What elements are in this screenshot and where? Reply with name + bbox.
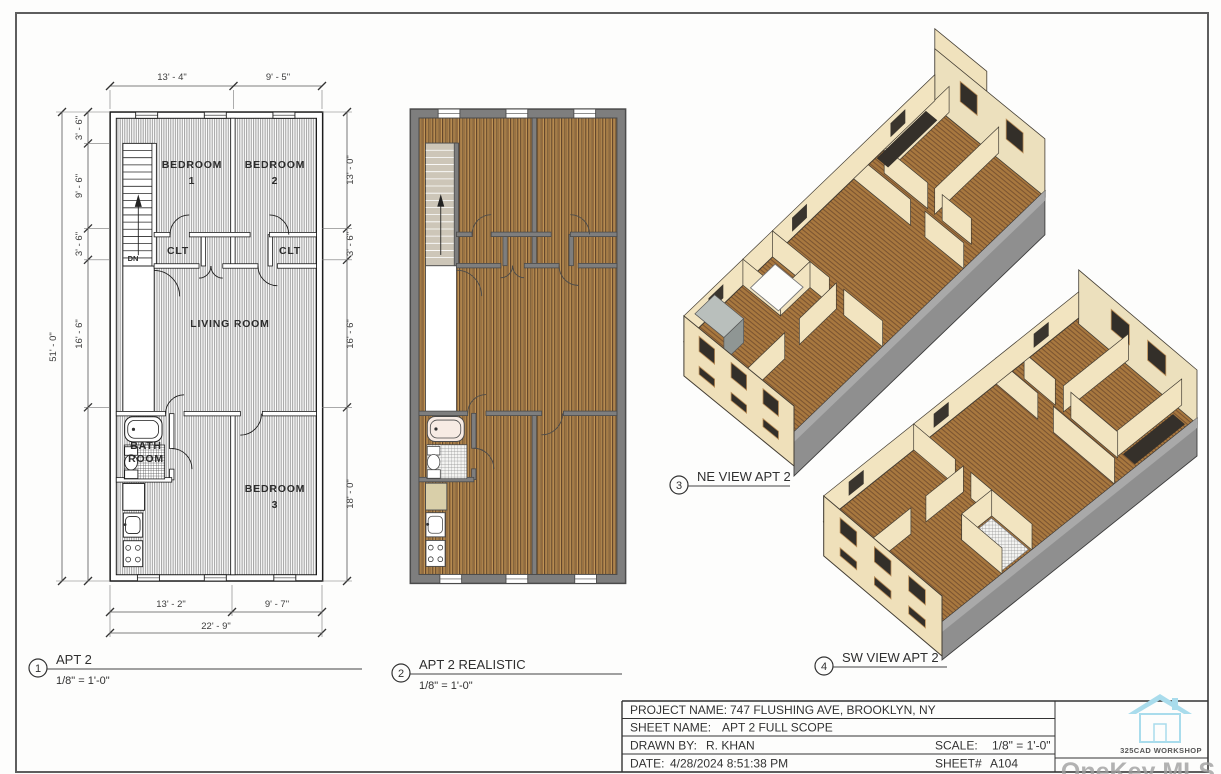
view-number: 2 (398, 668, 404, 680)
view-title: SW VIEW APT 2 (842, 650, 939, 665)
drawn-by-value: R. KHAN (706, 739, 755, 753)
scale-value: 1/8" = 1'-0" (992, 739, 1051, 753)
dim-left-3: 3' - 6" (74, 232, 85, 256)
sheet-number-value: A104 (990, 757, 1018, 771)
label-bathroom-1: BATH (130, 440, 162, 452)
logo-chimney-icon (1172, 698, 1178, 710)
date-label: DATE: (630, 757, 664, 771)
label-bathroom-2: ROOM (128, 453, 164, 465)
dim-right-4: 18' - 0" (345, 479, 356, 508)
sheet-name-label: SHEET NAME: (630, 721, 711, 735)
label-bedroom-1: BEDROOM (162, 159, 222, 171)
project-name-label: PROJECT NAME: (630, 703, 727, 717)
dim-top-1: 13' - 4" (157, 72, 186, 83)
drawn-by-label: DRAWN BY: (630, 739, 697, 753)
view-title: APT 2 REALISTIC (419, 657, 526, 672)
floor-plan-apt2-realistic (410, 109, 625, 583)
label-bedroom-2: BEDROOM (245, 159, 305, 171)
view-number: 4 (821, 661, 827, 673)
dim-top-2: 9' - 5" (266, 72, 290, 83)
label-living-room: LIVING ROOM (190, 318, 269, 330)
dim-right-2: 3' - 6" (345, 232, 356, 256)
label-bedroom-3-num: 3 (272, 499, 279, 511)
view-title: APT 2 (56, 652, 92, 667)
dim-left-2: 9' - 6" (74, 174, 85, 198)
floor-plan-apt2 (110, 112, 323, 581)
view-title: NE VIEW APT 2 (697, 469, 791, 484)
logo-text: 325CAD WORKSHOP (1120, 746, 1202, 755)
dim-left-total: 51' - 0" (48, 332, 59, 361)
dim-right-3: 16' - 6" (345, 319, 356, 348)
view-number: 1 (35, 663, 41, 675)
label-closet-2: CLT (279, 245, 301, 257)
date-value: 4/28/2024 8:51:38 PM (670, 757, 788, 771)
view-scale: 1/8" = 1'-0" (56, 675, 110, 687)
sheet-number-label: SHEET# (935, 757, 982, 771)
dim-bottom-total: 22' - 9" (201, 621, 230, 632)
project-name-value: 747 FLUSHING AVE, BROOKLYN, NY (730, 703, 936, 717)
dim-bottom-2: 9' - 7" (265, 599, 289, 610)
label-closet-1: CLT (167, 245, 189, 257)
dim-bottom-1: 13' - 2" (156, 599, 185, 610)
sheet-name-value: APT 2 FULL SCOPE (722, 721, 833, 735)
dim-right-1: 13' - 0" (345, 155, 356, 184)
label-stairs-down: DN (128, 254, 139, 263)
watermark: OneKey MLS (1061, 758, 1215, 774)
drawing-sheet: 13' - 4" 9' - 5" 13' - 2" 9' - 7" 22' - … (0, 0, 1221, 774)
view-number: 3 (676, 480, 682, 492)
dim-left-1: 3' - 6" (74, 116, 85, 140)
sheet-canvas: 13' - 4" 9' - 5" 13' - 2" 9' - 7" 22' - … (0, 0, 1221, 774)
label-bedroom-3: BEDROOM (245, 483, 305, 495)
label-bedroom-1-num: 1 (189, 175, 196, 187)
view-scale: 1/8" = 1'-0" (419, 680, 473, 692)
dim-left-4: 16' - 6" (74, 319, 85, 348)
label-bedroom-2-num: 2 (272, 175, 279, 187)
scale-label: SCALE: (935, 739, 978, 753)
